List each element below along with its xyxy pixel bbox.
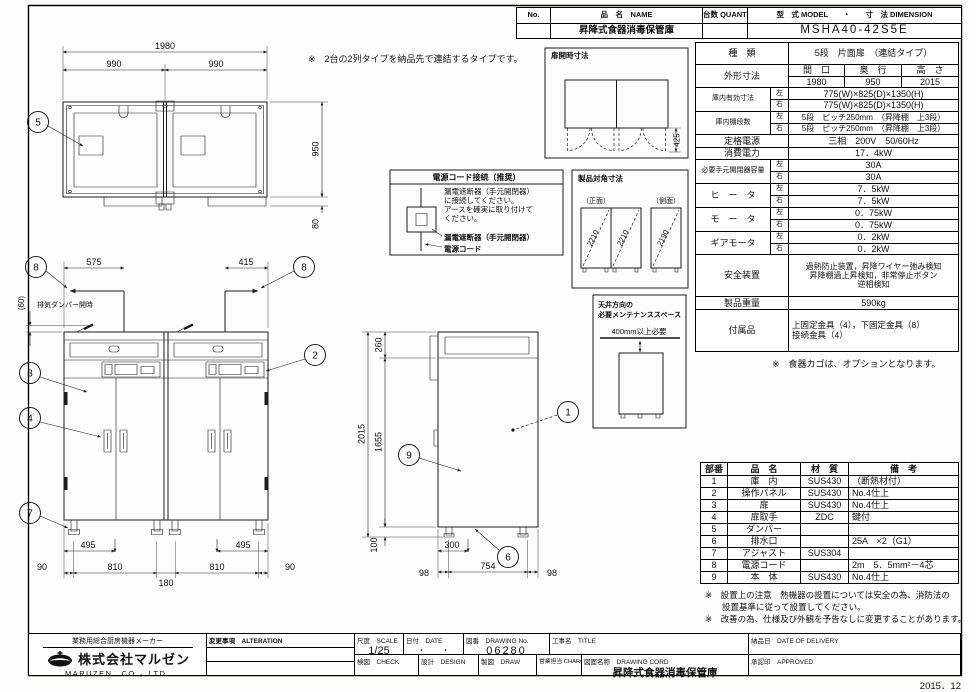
dim-810-left: 810	[107, 562, 122, 572]
part-remarks: 2m 5．5mm²－4芯	[849, 560, 959, 572]
drawing-sheet: ※ 2台の2列タイプを納品先で連結するタイプです。 1980 990 990	[0, 0, 976, 692]
parts-header-material: 材 質	[801, 463, 849, 476]
part-remarks: No.4仕上	[849, 488, 959, 500]
dim-1980: 1980	[155, 41, 175, 51]
dim-495-left: 495	[80, 540, 95, 550]
balloon-8-left: 8	[26, 257, 68, 289]
side-feet	[444, 527, 528, 537]
spec-shelf-left-value: 5段 ピッチ250mm （昇降棚 上3段）	[789, 111, 959, 123]
no-label: No.	[517, 8, 551, 24]
project-title-cell: 工事名 TITLE	[549, 634, 748, 655]
part-remarks: 25A ×2（G1）	[849, 536, 959, 548]
spec-breaker-label: 必要手元開閉器容量	[696, 159, 771, 183]
exhaust-dampers-open	[77, 325, 193, 333]
diagonal-dims-box: 製品対角寸法 （正面） （側面） 2210 2210 2190	[572, 170, 688, 288]
dim-990-left: 990	[106, 59, 121, 69]
breaker-label: 漏電遮断器（手元開閉器）	[444, 232, 534, 242]
dim-2190: 2190	[655, 228, 670, 247]
ceiling-space-box: 天井方向の 必要メンテナンススペース 400mm以上必要	[593, 295, 686, 428]
dim-1655: 1655	[374, 432, 384, 452]
balloon-2-number: 2	[312, 351, 318, 362]
spec-table: 種 類 5段 片面扉 （連結タイプ） 外形寸法 間 口 奥 行 高 さ 1980…	[695, 42, 959, 352]
parts-table: 部番 品 名 材 質 備 考 1 庫 内 SUS430 （断熱材付） 2 操作パ…	[700, 462, 959, 584]
project-title-label: 工事名 TITLE	[550, 634, 748, 645]
spec-safety-value: 過熱防止装置，昇降ワイヤー弛み検知 昇降棚過上昇検知，非常停止ボタン 逆相検知	[789, 255, 959, 297]
spec-heater-left-tag: 左	[771, 183, 789, 195]
part-no: 5	[701, 524, 728, 536]
spec-depth-value: 950	[845, 77, 902, 88]
part-name: アジャスト	[728, 548, 801, 560]
dim-100: 100	[369, 537, 379, 552]
power-text-3: アースを確実に取り付けて	[444, 204, 533, 214]
spec-breaker-left-tag: 左	[771, 159, 789, 171]
spec-heater-left-value: 7．5kW	[789, 183, 959, 195]
maruzen-logo	[45, 651, 75, 667]
balloon-4-number: 4	[27, 414, 33, 425]
name-label: 品 名 NAME	[551, 8, 703, 24]
spec-kind-value: 5段 片面扉 （連結タイプ）	[789, 43, 959, 65]
parts-row-2: 2 操作パネル SUS430 No.4仕上	[701, 488, 959, 500]
vent-mesh-left	[74, 113, 157, 187]
issue-date: 2015．12	[895, 678, 961, 692]
balloon-5-number: 5	[35, 118, 41, 129]
no-value	[517, 24, 551, 39]
drawing-name-value: 昇降式食器消毒保管庫	[582, 665, 748, 680]
draw-label: 製図 DRAW	[479, 655, 536, 666]
power-text-1: 漏電遮断器（手元開閉器）	[444, 186, 534, 196]
approved-cell: 承認印 APPROVED	[748, 655, 961, 675]
company-tagline: 業務用総合厨房機器メーカー	[43, 636, 193, 648]
drawing-no-cell: 図番 DRAWING No. 06280	[463, 634, 549, 655]
drawing-name-cell: 図面名称 DRAWING CORD 昇降式食器消毒保管庫	[581, 655, 748, 675]
alteration-box: 変更事項 ALTERATION	[206, 634, 354, 675]
part-name: 扉取手	[728, 512, 801, 524]
part-no: 2	[701, 488, 728, 500]
balloon-3: 3	[20, 363, 88, 393]
balloon-1: 1	[511, 402, 578, 432]
balloon-9: 9	[399, 445, 462, 472]
spec-heater-right-tag: 右	[771, 195, 789, 207]
dim-425: 425	[673, 133, 682, 147]
spec-weight-label: 製品重量	[696, 297, 789, 310]
part-remarks: No.4仕上	[849, 500, 959, 512]
side-vent-grille	[445, 337, 529, 354]
spec-motor-label: モ ー タ	[696, 207, 771, 231]
drawing-no-label: 図番 DRAWING No.	[464, 634, 549, 645]
date-label: 日付 DATE	[404, 634, 463, 645]
part-material	[801, 536, 849, 548]
hinges	[64, 392, 268, 490]
part-material: ZDC	[801, 512, 849, 524]
spec-inner-right-value: 775(W)×825(D)×1350(H)	[789, 100, 959, 111]
design-label: 設計 DESIGN	[419, 655, 478, 666]
model-value: MSHA40-42S5E	[748, 24, 962, 39]
part-no: 6	[701, 536, 728, 548]
spec-breaker-left-value: 30A	[789, 159, 959, 171]
spec-inner-left-value: 775(W)×825(D)×1350(H)	[789, 88, 959, 100]
part-no: 9	[701, 572, 728, 584]
charge-label: 営業担当 CHARGE	[537, 655, 581, 665]
part-no: 1	[701, 476, 728, 488]
spec-power-value: 三相 200V 50/60Hz	[789, 134, 959, 147]
part-remarks	[849, 524, 959, 536]
spec-accessory-value: 上固定金具（4），下固定金具（8） 接続金具（4）	[789, 310, 959, 352]
part-no: 3	[701, 500, 728, 512]
qty-value	[703, 24, 748, 39]
approved-label: 承認印 APPROVED	[749, 655, 961, 666]
spec-shelf-right-tag: 右	[771, 123, 789, 134]
spec-motor-right-tag: 右	[771, 219, 789, 231]
side-view: 2015 260 1655 100 300 98 754 98 1 9	[357, 332, 579, 578]
scale-cell: 尺度 SCALE 1/25	[354, 634, 403, 655]
spec-heater-right-value: 7．5kW	[789, 195, 959, 207]
company-name-en: MARUZEN CO.，LTD.	[29, 668, 206, 679]
delivery-label: 納品日 DATE OF DELIVERY	[749, 634, 961, 645]
balloon-7: 7	[20, 503, 69, 529]
check-cell: 検図 CHECK	[354, 655, 418, 675]
alteration-label: 変更事項 ALTERATION	[207, 634, 354, 648]
alteration-row-1	[207, 648, 354, 662]
dim-180: 180	[158, 578, 173, 588]
spec-breaker-right-tag: 右	[771, 171, 789, 183]
spec-inner-label: 庫内有効寸法	[696, 88, 771, 111]
spec-inner-right-tag: 右	[771, 100, 789, 111]
basket-option-note: ※ 食器カゴは、オプションとなります。	[772, 357, 940, 370]
part-remarks	[849, 548, 959, 560]
dim-990-right: 990	[208, 59, 223, 69]
spec-shelf-left-tag: 左	[771, 111, 789, 123]
damper-plate-right	[181, 136, 205, 155]
part-name: 庫 内	[728, 476, 801, 488]
dim-495-right: 495	[235, 540, 250, 550]
dim-950: 950	[311, 141, 321, 156]
spec-breaker-right-value: 30A	[789, 171, 959, 183]
balloon-9-number: 9	[406, 451, 412, 462]
part-material: SUS430	[801, 476, 849, 488]
spec-inner-left-tag: 左	[771, 88, 789, 100]
dim-98-front: 98	[419, 568, 429, 578]
dim-810-right: 810	[209, 562, 224, 572]
part-remarks: （断熱材付）	[849, 476, 959, 488]
install-note-line1: ※ 設置上の注意 熱機器の設置については安全の為、消防法の	[705, 589, 950, 601]
balloon-4: 4	[20, 408, 102, 438]
top-note: ※ 2台の2列タイプを納品先で連結するタイプです。	[308, 53, 523, 64]
dim-2210-b: 2210	[615, 228, 630, 247]
parts-header-no: 部番	[701, 463, 728, 476]
spec-depth-label: 奥 行	[845, 65, 902, 77]
alteration-row-2	[207, 662, 354, 675]
part-remarks: 鍵付	[849, 512, 959, 524]
spec-motor-left-tag: 左	[771, 207, 789, 219]
part-material: SUS430	[801, 500, 849, 512]
control-panel-right	[206, 362, 264, 377]
change-note: ※ 改善の為、仕様及び外観を予告なしに変更することがあります。	[705, 613, 966, 625]
diagonal-title: 製品対角寸法	[577, 173, 623, 183]
parts-row-7: 7 アジャスト SUS304	[701, 548, 959, 560]
title-block-bottom: 業務用総合厨房機器メーカー 株式会社マルゼン MARUZEN CO.，LTD. …	[28, 633, 961, 676]
part-no: 4	[701, 512, 728, 524]
part-material: SUS430	[801, 488, 849, 500]
spec-accessory-line2: 接続金具（4）	[789, 331, 958, 341]
delivery-cell: 納品日 DATE OF DELIVERY	[748, 634, 961, 655]
part-material: SUS304	[801, 548, 849, 560]
power-text-2: に接続してください。	[444, 195, 519, 205]
spec-safety-line1: 過熱防止装置，昇降ワイヤー弛み検知	[789, 262, 958, 271]
parts-row-3: 3 扉 SUS430 No.4仕上	[701, 500, 959, 512]
draw-cell: 製図 DRAW	[478, 655, 536, 675]
spec-kind-label: 種 類	[696, 43, 789, 65]
part-no: 7	[701, 548, 728, 560]
dim-2015: 2015	[357, 424, 367, 444]
charge-cell: 営業担当 CHARGE	[536, 655, 581, 675]
company-box: 業務用総合厨房機器メーカー 株式会社マルゼン MARUZEN CO.，LTD.	[29, 634, 206, 675]
spec-safety-line2: 昇降棚過上昇検知，非常停止ボタン	[789, 271, 958, 280]
part-name: 操作パネル	[728, 488, 801, 500]
dim-300: 300	[444, 540, 459, 550]
parts-header-name: 品 名	[728, 463, 801, 476]
company-name: 株式会社マルゼン	[78, 649, 190, 668]
model-dim-label: 型 式 MODEL ・ 寸 法 DIMENSION	[748, 8, 962, 24]
feet	[69, 520, 265, 535]
date-cell: 日付 DATE ・ ・	[403, 634, 463, 655]
balloon-1-number: 1	[565, 408, 571, 419]
balloon-2: 2	[266, 345, 326, 372]
ceiling-clearance: 400mm以上必要	[611, 326, 667, 336]
balloon-8-right: 8	[261, 257, 315, 289]
spec-safety-line3: 逆相検知	[789, 280, 958, 289]
spec-consumption-label: 消費電力	[696, 147, 789, 159]
dim-260: 260	[374, 337, 384, 352]
spec-heater-label: ヒ ー タ	[696, 183, 771, 207]
vent-mesh-right	[173, 113, 256, 187]
balloon-8-left-number: 8	[33, 263, 39, 274]
part-name: 排水口	[728, 536, 801, 548]
exhaust-damper-label: 排気ダンパー開時	[37, 300, 93, 309]
spec-accessory-label: 付属品	[696, 310, 789, 352]
door-open-title: 扉開時寸法	[550, 50, 589, 60]
spec-motor-left-value: 0．75kW	[789, 207, 959, 219]
product-name-value: 昇降式食器消毒保管庫	[551, 24, 703, 39]
part-name: 扉	[728, 500, 801, 512]
spec-safety-label: 安全装置	[696, 255, 789, 297]
spec-gear-label: ギアモータ	[696, 231, 771, 254]
parts-row-8: 8 電源コード 2m 5．5mm²－4芯	[701, 560, 959, 572]
title-block-top: No. 品 名 NAME 台数 QUANTITY 型 式 MODEL ・ 寸 法…	[516, 7, 962, 39]
spec-motor-right-value: 0．75kW	[789, 219, 959, 231]
parts-row-5: 5 ダンパー	[701, 524, 959, 536]
parts-row-9: 9 本 体 SUS430 No.4仕上	[701, 572, 959, 584]
spec-weight-value: 590kg	[789, 297, 959, 310]
dim-90-right: 90	[285, 562, 295, 572]
plan-view: 1980 990 990 950 80 5	[28, 41, 329, 229]
control-panel-left	[102, 362, 160, 377]
balloon-3-number: 3	[27, 369, 33, 380]
spec-outer-label: 外形寸法	[696, 65, 789, 88]
scale-label: 尺度 SCALE	[355, 634, 403, 645]
part-material	[801, 524, 849, 536]
spec-gear-right-value: 0．2kW	[789, 243, 959, 254]
dim-90-left: 90	[37, 562, 47, 572]
ceiling-title-2: 必要メンテナンススペース	[597, 310, 681, 319]
breaker-icon	[407, 207, 436, 232]
spec-gear-right-tag: 右	[771, 243, 789, 254]
spec-gear-left-tag: 左	[771, 231, 789, 243]
dim-80: 80	[311, 219, 321, 229]
door-open-box: 扉開時寸法 425	[545, 48, 688, 158]
part-name: 本 体	[728, 572, 801, 584]
part-no: 8	[701, 560, 728, 572]
balloon-8-right-number: 8	[301, 263, 307, 274]
cord-label: 電源コード	[444, 244, 482, 254]
spec-power-label: 定格電源	[696, 134, 789, 147]
spec-width-value: 1980	[789, 77, 845, 88]
ceiling-title-1: 天井方向の	[598, 300, 633, 309]
parts-header-remarks: 備 考	[849, 463, 959, 476]
spec-consumption-value: 17．4kW	[789, 147, 959, 159]
balloon-6-number: 6	[505, 553, 511, 564]
balloon-5: 5	[28, 112, 84, 147]
front-view: 575 415 (60) 排気ダンパー開時 495 495 90 810 180…	[17, 257, 326, 589]
spec-width-label: 間 口	[789, 65, 845, 77]
parts-row-6: 6 排水口 25A ×2（G1）	[701, 536, 959, 548]
balloon-7-number: 7	[27, 509, 33, 520]
power-text-4: ください。	[444, 214, 482, 223]
spec-height-value: 2015	[902, 77, 959, 88]
dim-2210-a: 2210	[585, 228, 600, 247]
power-cord-box: 電源コード接続（推奨） 漏電遮断器（手元開閉器） に接続してください。 アースを…	[390, 170, 563, 255]
power-box-title: 電源コード接続（推奨）	[433, 172, 521, 182]
diagonal-front-label: （正面）	[582, 197, 610, 205]
dim-754: 754	[480, 561, 495, 571]
power-cords	[70, 291, 258, 332]
spec-gear-left-value: 0．2kW	[789, 231, 959, 243]
spec-shelf-right-value: 5段 ピッチ250mm （昇降棚 上3段）	[789, 123, 959, 134]
part-name: ダンパー	[728, 524, 801, 536]
parts-row-1: 1 庫 内 SUS430 （断熱材付）	[701, 476, 959, 488]
dim-575: 575	[86, 257, 101, 267]
diagonal-side-label: （側面）	[652, 196, 680, 205]
dim-60: (60)	[17, 296, 26, 311]
dim-98-rear: 98	[547, 568, 557, 578]
design-cell: 設計 DESIGN	[418, 655, 478, 675]
dim-415: 415	[238, 257, 253, 267]
part-material	[801, 560, 849, 572]
check-label: 検図 CHECK	[355, 655, 418, 666]
spec-shelf-label: 庫内棚段数	[696, 111, 771, 134]
qty-label: 台数 QUANTITY	[703, 8, 748, 24]
part-remarks: No.4仕上	[849, 572, 959, 584]
install-note-line2: 設置基準に従って設置してください。	[722, 601, 866, 613]
parts-row-4: 4 扉取手 ZDC 鍵付	[701, 512, 959, 524]
part-name: 電源コード	[728, 560, 801, 572]
part-material: SUS430	[801, 572, 849, 584]
spec-height-label: 高 さ	[902, 65, 959, 77]
